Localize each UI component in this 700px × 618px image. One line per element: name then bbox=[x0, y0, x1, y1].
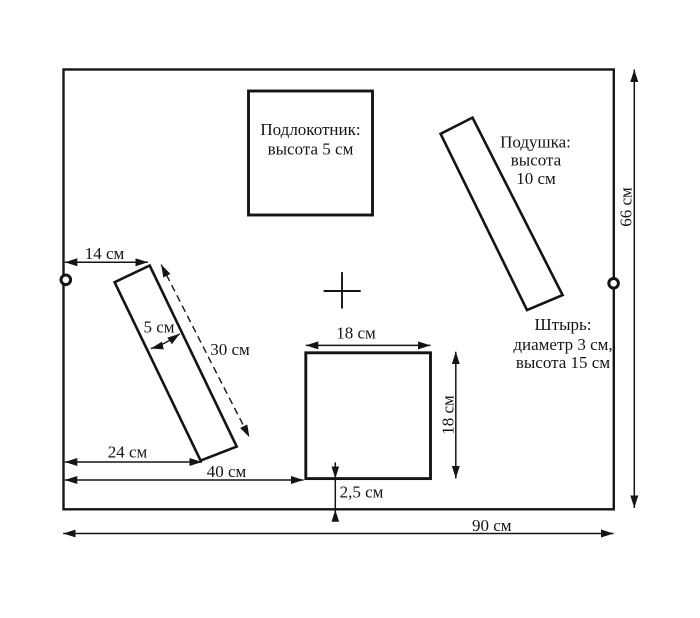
svg-text:24 см: 24 см bbox=[108, 443, 148, 462]
svg-text:5 см: 5 см bbox=[143, 318, 174, 337]
svg-text:2,5 см: 2,5 см bbox=[340, 483, 384, 502]
svg-text:Подлокотник:: Подлокотник: bbox=[260, 120, 360, 139]
svg-text:10 см: 10 см bbox=[516, 169, 556, 188]
svg-text:Штырь:: Штырь: bbox=[535, 315, 592, 334]
svg-text:диаметр 3 см,: диаметр 3 см, bbox=[513, 335, 612, 354]
svg-text:высота 15 см: высота 15 см bbox=[516, 353, 610, 372]
svg-text:14 см: 14 см bbox=[85, 244, 125, 263]
svg-text:высота: высота bbox=[511, 151, 562, 170]
svg-text:40 см: 40 см bbox=[207, 462, 247, 481]
svg-text:30 см: 30 см bbox=[210, 340, 250, 359]
svg-text:18 см: 18 см bbox=[439, 395, 458, 435]
svg-text:90 см: 90 см bbox=[472, 516, 512, 535]
svg-text:66 см: 66 см bbox=[617, 187, 636, 227]
svg-text:18 см: 18 см bbox=[336, 324, 376, 343]
svg-text:высота 5 см: высота 5 см bbox=[268, 140, 354, 159]
svg-text:Подушка:: Подушка: bbox=[500, 133, 571, 152]
